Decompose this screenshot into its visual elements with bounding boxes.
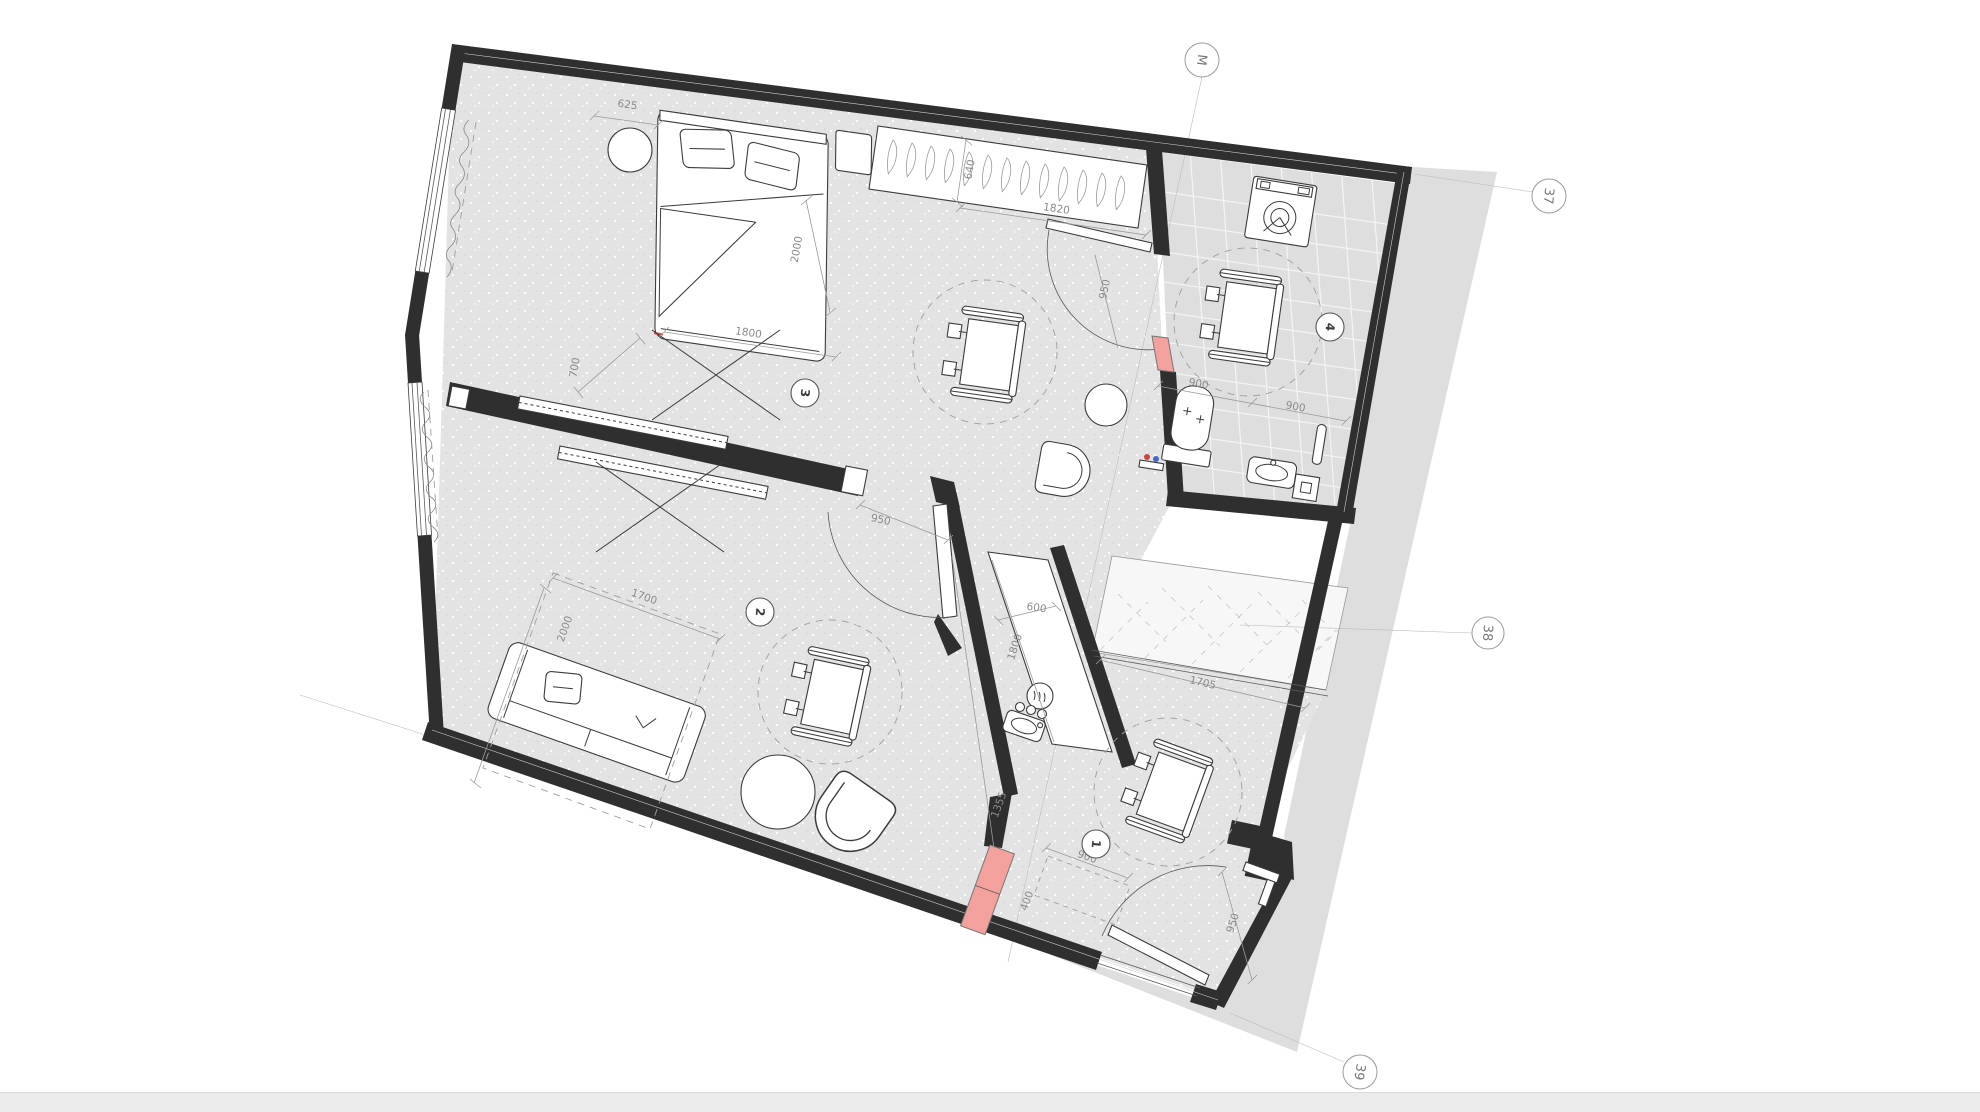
room-label-2: 2 [753,607,768,617]
floor-plan-svg: 625 1800 2000 700 640 1820 950 900 900 1… [0,0,1980,1112]
shower-drain [1292,474,1319,501]
room-label-4: 4 [1323,322,1338,332]
washing-machine [1244,176,1317,247]
axis-label-38: 38 [1479,624,1495,641]
hot-water-icon [1144,454,1150,460]
room-label-3: 3 [798,388,813,398]
floorplan-page: 625 1800 2000 700 640 1820 950 900 900 1… [0,0,1980,1112]
axis-label-37: 37 [1540,187,1556,205]
cold-water-icon [1153,456,1159,462]
room-label-1: 1 [1089,839,1104,849]
nightstand [835,130,871,175]
bedside-table [608,128,652,172]
coffee-table [741,755,815,829]
footer-strip [0,1092,1980,1112]
bed [655,110,828,362]
axis-label-m: M [1193,53,1209,66]
side-table-bedroom [1085,384,1127,426]
axis-label-39: 39 [1350,1062,1368,1081]
